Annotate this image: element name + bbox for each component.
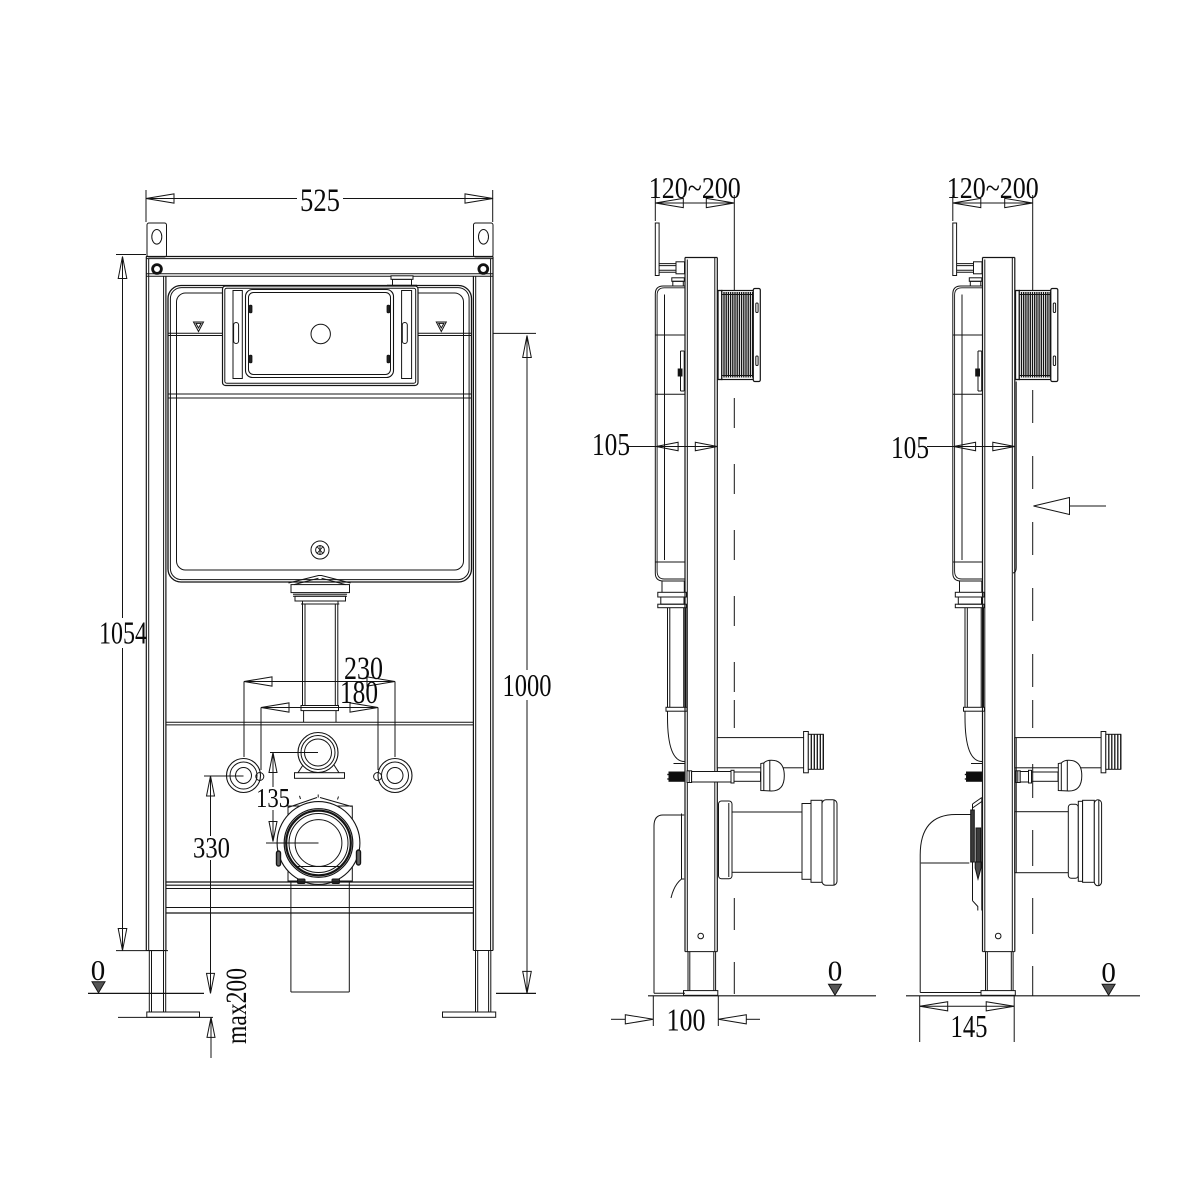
svg-text:100: 100 (667, 1002, 706, 1038)
svg-text:105: 105 (891, 429, 929, 465)
svg-text:135: 135 (256, 783, 290, 813)
svg-text:145: 145 (951, 1008, 988, 1044)
svg-text:180: 180 (340, 675, 378, 711)
svg-text:330: 330 (193, 832, 230, 865)
svg-text:max200: max200 (220, 968, 253, 1044)
svg-text:1000: 1000 (503, 667, 552, 703)
svg-text:525: 525 (300, 183, 340, 219)
svg-text:0: 0 (828, 956, 843, 988)
svg-text:1054: 1054 (99, 615, 147, 651)
svg-text:105: 105 (592, 426, 630, 462)
svg-text:120~200: 120~200 (947, 170, 1039, 205)
svg-text:120~200: 120~200 (649, 170, 741, 205)
